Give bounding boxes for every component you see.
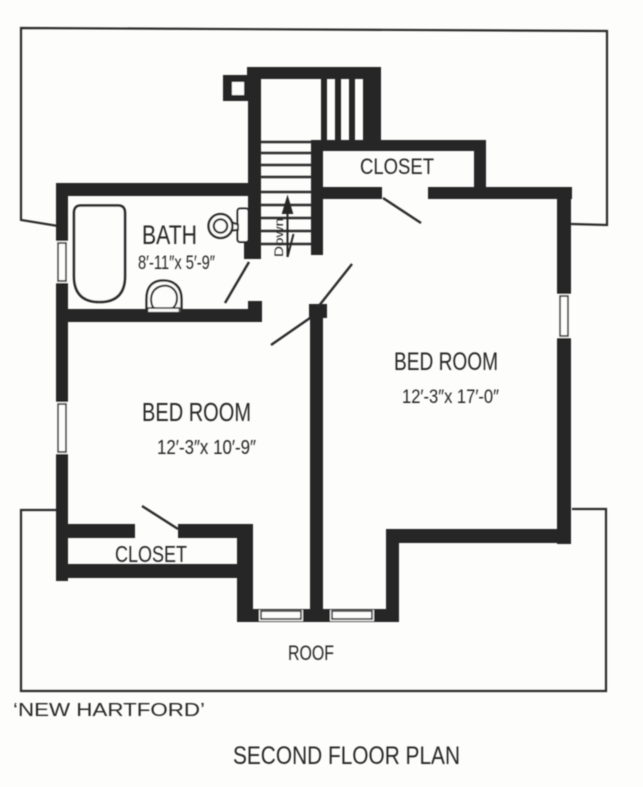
svg-text:12′-3″x 17′-0″: 12′-3″x 17′-0″ bbox=[402, 387, 499, 408]
svg-text:BED ROOM: BED ROOM bbox=[142, 397, 251, 427]
svg-text:BED ROOM: BED ROOM bbox=[394, 348, 498, 376]
svg-text:Down: Down bbox=[272, 218, 286, 257]
svg-text:CLOSET: CLOSET bbox=[360, 154, 434, 179]
svg-text:ROOF: ROOF bbox=[288, 642, 334, 665]
svg-text:12′-3″x 10′-9″: 12′-3″x 10′-9″ bbox=[157, 437, 256, 459]
svg-text:8′-11″x 5′-9″: 8′-11″x 5′-9″ bbox=[138, 253, 215, 274]
svg-text:CLOSET: CLOSET bbox=[115, 541, 187, 567]
svg-text:‘NEW HARTFORD’: ‘NEW HARTFORD’ bbox=[13, 700, 205, 720]
svg-text:SECOND FLOOR PLAN: SECOND FLOOR PLAN bbox=[233, 742, 460, 770]
svg-text:BATH: BATH bbox=[142, 220, 197, 250]
